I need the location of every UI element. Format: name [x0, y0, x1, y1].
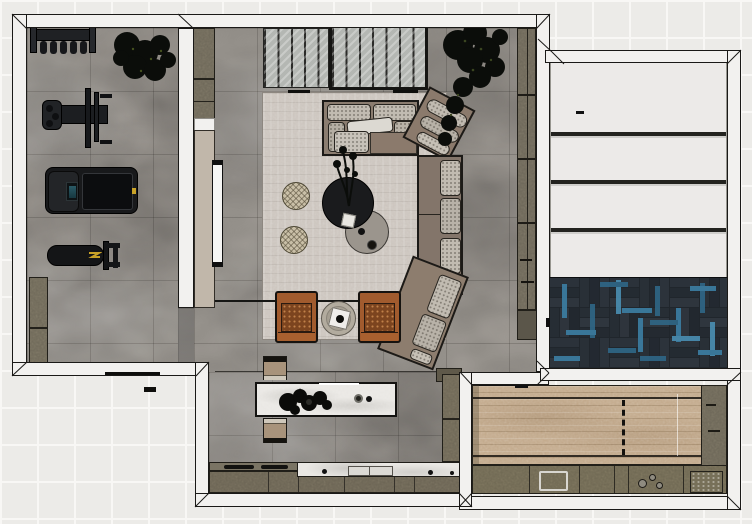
utility-hob-knob [638, 479, 647, 488]
weight-rack-post [89, 27, 96, 53]
treadmill-accent [132, 188, 136, 194]
island-stool [263, 418, 287, 443]
weight-stack [42, 100, 62, 130]
hob-burners [261, 465, 288, 469]
weight-plate [60, 41, 67, 54]
wood-seam-bottom [473, 455, 701, 457]
sink-counter [297, 462, 462, 477]
glass-partition-sliding [329, 25, 428, 90]
panel-mark [576, 111, 584, 114]
treadmill-display [66, 182, 78, 201]
utility-hob-knob [649, 474, 656, 481]
hob-burners [224, 465, 254, 469]
round-side-table [321, 301, 356, 336]
glass-partition-left [263, 28, 329, 88]
treadmill-belt [82, 173, 133, 210]
island-stool [263, 356, 287, 380]
wall-utility-bottom [459, 496, 741, 510]
indoor-tree [425, 15, 517, 165]
tv-wall-mounted [212, 160, 223, 267]
wood-dashed-divider [622, 400, 625, 455]
weight-rack-bar [30, 29, 96, 41]
kitchen-island [255, 382, 397, 417]
wall-shelf-lower-block [517, 310, 537, 340]
wall-divider [178, 28, 194, 308]
gym-cabinet [29, 277, 48, 372]
utility-hob-knob [656, 482, 663, 489]
utility-sink-outline [539, 471, 568, 491]
divider-top-cabinet [192, 28, 215, 120]
utility-base-cabinets [472, 465, 727, 494]
utility-tray [690, 471, 723, 493]
wall-kitchen-left [195, 362, 209, 507]
wall-top [12, 14, 550, 28]
bench-frame [113, 246, 118, 268]
leather-armchair [358, 291, 401, 343]
floor-seam [215, 371, 460, 372]
cable-machine-post [85, 88, 91, 148]
coffee-table-card [341, 213, 356, 228]
round-pouf [282, 182, 310, 210]
door-stop-mark [144, 387, 156, 392]
weight-plate [40, 41, 47, 54]
rug-edge-mark [393, 90, 418, 93]
wood-light-joint [677, 394, 678, 456]
cable-machine-arm [100, 140, 112, 144]
wall-utility-top-left [459, 372, 549, 385]
cable-machine-arm [100, 94, 112, 98]
island-faucet [354, 394, 363, 403]
gym-plant [103, 25, 183, 97]
garage-door-handle [546, 318, 550, 327]
garage-door-panels [550, 63, 727, 277]
wall-utility-left [459, 372, 472, 507]
door-leaf-line [105, 372, 160, 375]
weight-plate [50, 41, 57, 54]
round-pouf [280, 226, 308, 254]
gym-passage-floor [178, 308, 194, 362]
cable-machine-post [94, 92, 99, 142]
coffee-table-plant [325, 140, 369, 210]
wall-left [12, 14, 27, 376]
weight-rack-post [30, 27, 37, 53]
garage-herringbone-floor [550, 277, 727, 368]
utility-side-cabinet [701, 385, 727, 467]
weight-plate [80, 41, 87, 54]
wall-utility-top-right [540, 368, 741, 381]
utility-wood-floor [472, 385, 702, 465]
cooktop-counter [209, 462, 298, 471]
island-faucet-knob [366, 396, 372, 402]
wall-kitchen-bottom [195, 493, 471, 507]
leather-armchair [275, 291, 318, 343]
floorplan-canvas[interactable] [0, 0, 752, 524]
wood-seam-top [473, 397, 701, 399]
rug-edge-mark [288, 90, 310, 93]
island-decor-vases [275, 386, 337, 416]
wall-right-outer [727, 50, 741, 510]
treadmill [45, 167, 138, 214]
kitchen-sink [348, 466, 393, 476]
workout-bench-pad [47, 245, 104, 266]
wall-shelf-unit [517, 28, 536, 310]
weight-plate [70, 41, 77, 54]
wall-garage-top [545, 50, 741, 63]
